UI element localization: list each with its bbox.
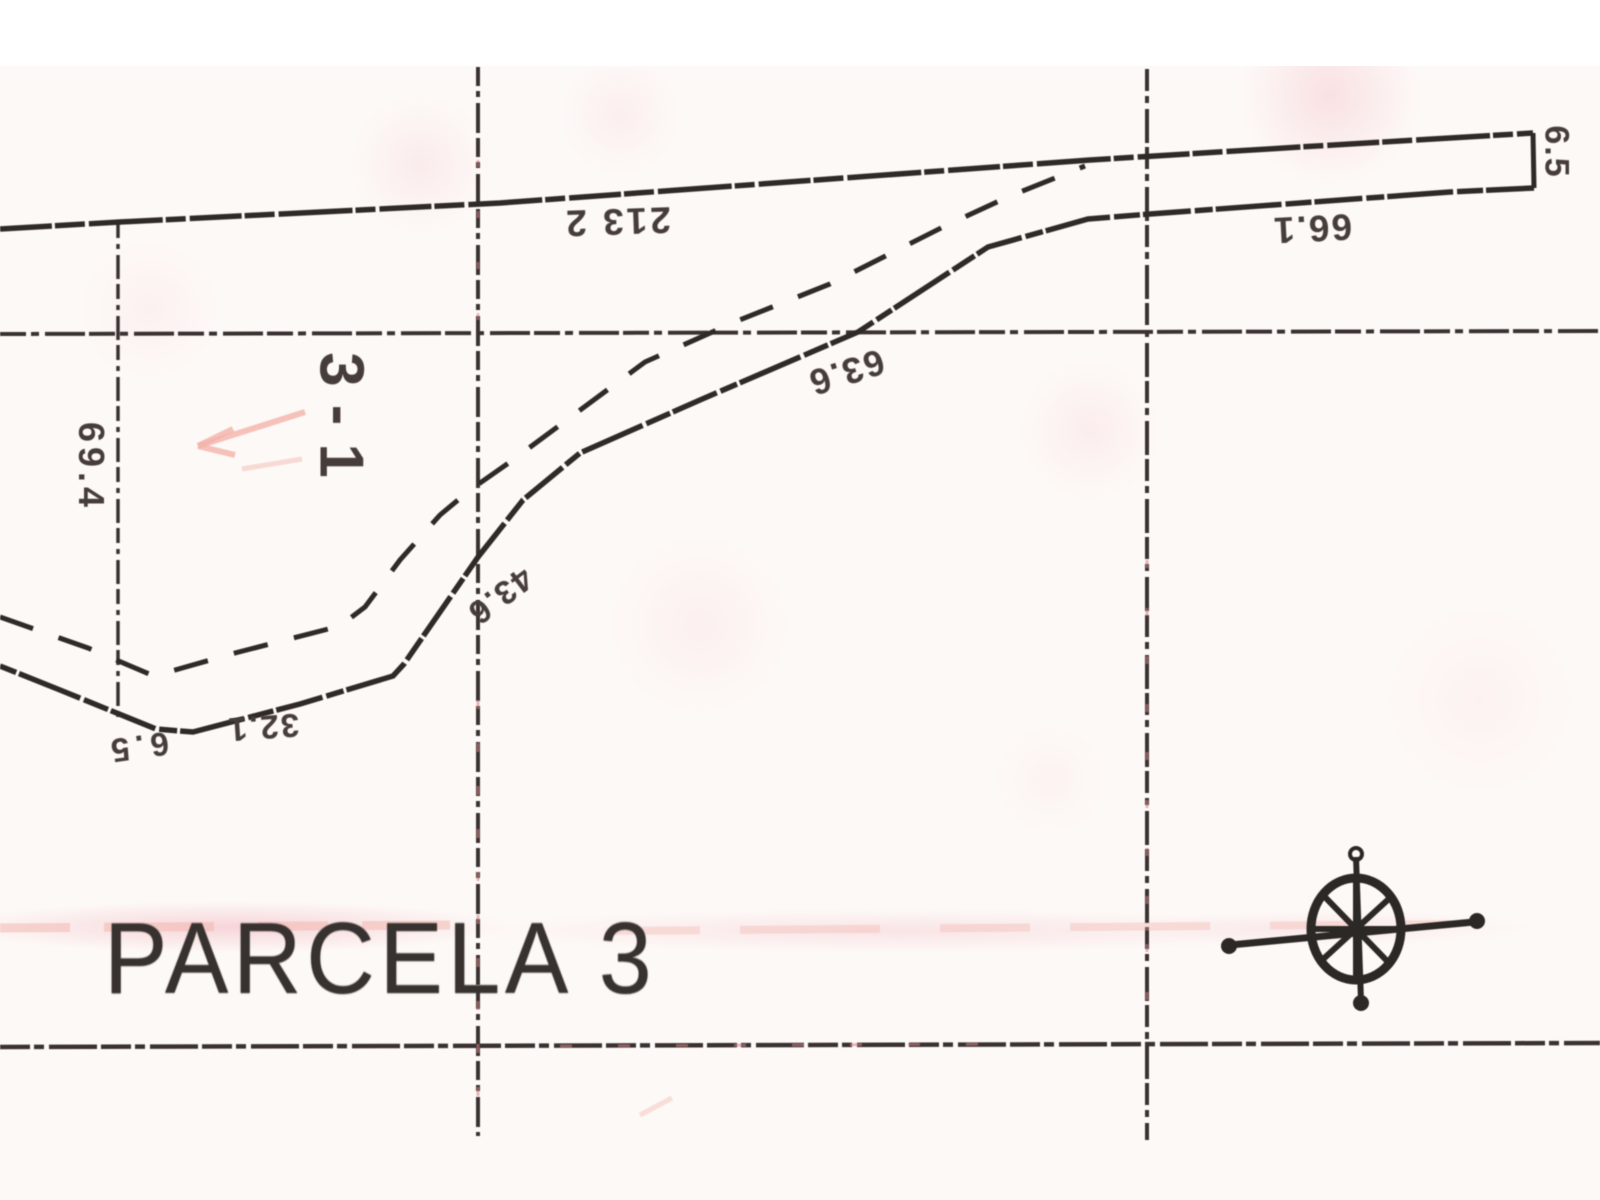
boundary-solid-line <box>0 188 1534 732</box>
parcel-title: PARCELA 3 <box>104 902 656 1017</box>
compass-rose-icon <box>1221 848 1485 1011</box>
measurement-label-lower-segment: 32.1 <box>226 706 301 749</box>
zone-label: 3-1 <box>306 352 377 496</box>
map-line-work <box>0 0 1600 1200</box>
strip-end-edge <box>1533 133 1534 188</box>
measurement-label-strip-width: 6.5 <box>1537 125 1576 178</box>
cadastral-map-scan: 6.5 213 2 66.1 63.6 43.6 69.4 6.5 32.1 3… <box>0 0 1600 1200</box>
boundary-dashed-line <box>0 166 1085 676</box>
measurement-label-left-grid: 69.4 <box>70 422 112 512</box>
measurement-label-top-boundary: 213 2 <box>563 198 672 244</box>
measurement-label-strip-lower: 66.1 <box>1271 205 1353 251</box>
